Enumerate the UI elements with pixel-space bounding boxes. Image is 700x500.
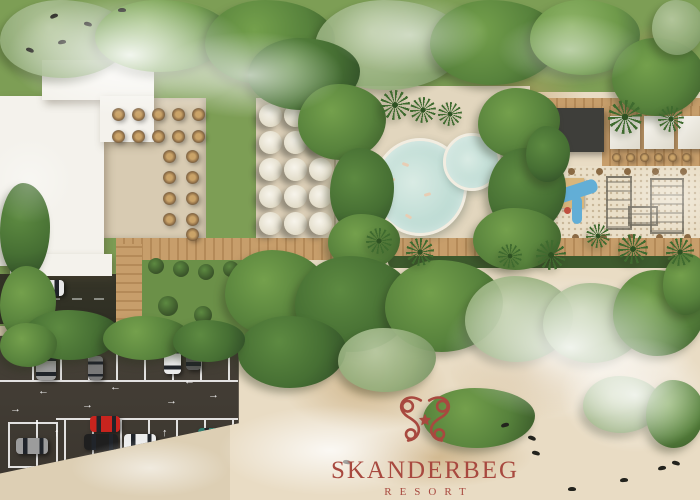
beach-umbrella (259, 185, 282, 208)
palm-tree (380, 90, 410, 120)
lane-arrow-left: ← (184, 376, 195, 387)
bush (173, 261, 189, 277)
resort-name: SKANDERBEG (330, 457, 520, 485)
lane-arrow-right: → (10, 404, 21, 415)
dining-table (163, 192, 176, 205)
skanderbeg-monogram-icon (393, 392, 457, 450)
dining-table (163, 213, 176, 226)
dining-table (186, 192, 199, 205)
figure-silhouette (568, 487, 576, 491)
fog-patch (0, 120, 90, 240)
beach-umbrella (309, 212, 332, 235)
logo-block: SKANDERBEG RESORT (330, 392, 520, 498)
bush (158, 296, 178, 316)
beach-umbrella (284, 158, 307, 181)
lane-arrow-left: ← (38, 386, 49, 397)
palm-tree (366, 228, 392, 254)
palm-tree (608, 100, 642, 134)
beach-umbrella (309, 185, 332, 208)
fog-patch (595, 150, 700, 245)
parked-car (88, 356, 103, 380)
dining-table (163, 150, 176, 163)
fog-patch (40, 428, 260, 500)
fog-patch (470, 0, 670, 100)
palm-tree (410, 97, 436, 123)
bush (148, 258, 164, 274)
beach-umbrella (309, 158, 332, 181)
lane-arrow-left: ← (110, 382, 121, 393)
stepping-stone (568, 168, 575, 175)
resort-subtitle: RESORT (330, 486, 520, 498)
dining-table (186, 150, 199, 163)
dining-table (186, 228, 199, 241)
fog-patch (530, 315, 700, 475)
palm-tree (438, 102, 462, 126)
beach-umbrella (259, 212, 282, 235)
dining-table (163, 171, 176, 184)
beach-umbrella (259, 158, 282, 181)
resort-aerial-scene: SKANDERBEG RESORT ←←←→→→→↑↑↑↑ (0, 0, 700, 500)
bush (198, 264, 214, 280)
lane-arrow-right: → (82, 400, 93, 411)
play-equipment (564, 207, 571, 214)
beach-umbrella (284, 185, 307, 208)
beach-umbrella (284, 212, 307, 235)
palm-tree (658, 106, 684, 132)
dining-table (186, 171, 199, 184)
water-slide (572, 196, 582, 224)
dining-table (186, 213, 199, 226)
